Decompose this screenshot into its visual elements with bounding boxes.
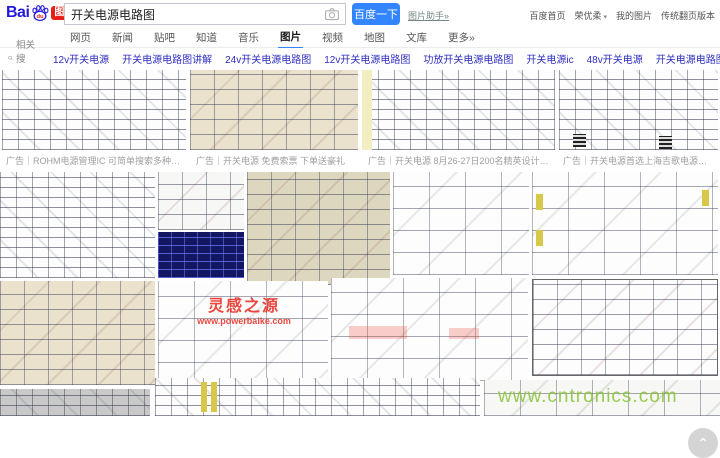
vertical-tabs-bar: 网页 新闻 贴吧 知道 音乐 图片 视频 地图 文库 更多» <box>0 27 720 48</box>
related-term-6[interactable]: 开关电源ic <box>526 51 573 66</box>
tab-news[interactable]: 新闻 <box>110 27 135 48</box>
link-baidu-home[interactable]: 百度首页 <box>529 9 565 22</box>
baidu-image-search-page: { "header": { "logo": {"bai": "Bai", "du… <box>0 0 720 416</box>
tab-more[interactable]: 更多» <box>446 27 477 48</box>
image-result[interactable] <box>331 278 528 381</box>
wire-highlight <box>536 194 543 210</box>
svg-text:du: du <box>37 14 45 20</box>
search-button[interactable]: 百度一下 <box>352 3 400 25</box>
transformer-highlight <box>201 382 207 412</box>
wire-highlight <box>536 230 543 246</box>
image-result[interactable] <box>393 172 529 275</box>
image-result[interactable] <box>155 378 480 416</box>
image-edge-decor <box>362 70 372 150</box>
related-search-bar: 相关搜索： 12v开关电源 开关电源电路图讲解 24v开关电源电路图 12v开关… <box>0 48 720 68</box>
image-result[interactable] <box>0 389 150 416</box>
tab-maps[interactable]: 地图 <box>362 27 387 48</box>
ad-image-designer[interactable] <box>362 70 555 150</box>
image-results-grid: 广告｜ROHM电源管理IC 可简单搜索多种产品线! 广告｜开关电源 免费索票 下… <box>0 68 720 416</box>
tab-wenku[interactable]: 文库 <box>404 27 429 48</box>
image-result[interactable] <box>158 172 244 230</box>
back-to-top-button[interactable]: ⌃ <box>688 428 718 458</box>
related-term-3[interactable]: 24v开关电源电路图 <box>225 51 311 66</box>
related-term-1[interactable]: 12v开关电源 <box>53 51 109 66</box>
link-my-images[interactable]: 我的图片 <box>616 9 652 22</box>
image-helper-link[interactable]: 图片助手» <box>408 9 449 22</box>
tab-images-active[interactable]: 图片 <box>278 26 303 49</box>
image-result[interactable] <box>0 281 155 385</box>
ad-caption[interactable]: 广告｜开关电源 8月26-27日200名精英设计师等.. <box>368 154 553 167</box>
ad-caption[interactable]: 广告｜ROHM电源管理IC 可简单搜索多种产品线! <box>6 154 184 167</box>
watermark-stamp <box>349 326 407 339</box>
transformer-highlight <box>211 382 217 412</box>
ad-image-jige[interactable] <box>559 70 718 150</box>
qr-code <box>659 136 672 149</box>
related-term-4[interactable]: 12v开关电源电路图 <box>324 51 410 66</box>
wire-highlight <box>702 190 709 206</box>
related-term-2[interactable]: 开关电源电路图讲解 <box>122 51 212 66</box>
ad-image-expo[interactable] <box>190 70 358 150</box>
tab-video[interactable]: 视频 <box>320 27 345 48</box>
watermark-stamp <box>449 328 479 339</box>
search-icon <box>8 53 13 63</box>
camera-search-icon[interactable] <box>324 6 340 22</box>
image-result-boxed[interactable] <box>532 279 718 376</box>
image-result-cntronics[interactable] <box>484 380 720 416</box>
tab-tieba[interactable]: 贴吧 <box>152 27 177 48</box>
tab-web[interactable]: 网页 <box>68 27 93 48</box>
image-result[interactable] <box>0 172 155 278</box>
top-right-links: 百度首页 荣优柔 ▾ 我的图片 传统翻页版本 <box>529 9 715 22</box>
related-term-8[interactable]: 开关电源电路图详解 <box>656 51 720 66</box>
image-result-blueprint[interactable] <box>158 232 244 278</box>
baidu-paw-icon: du <box>30 3 50 23</box>
chevron-down-icon: ▾ <box>602 14 607 21</box>
ad-image-rohm[interactable] <box>2 70 186 150</box>
tab-music[interactable]: 音乐 <box>236 27 261 48</box>
image-result[interactable] <box>247 172 390 285</box>
user-menu[interactable]: 荣优柔 ▾ <box>574 9 606 22</box>
search-input[interactable] <box>65 7 324 21</box>
related-term-5[interactable]: 功放开关电源电路图 <box>423 51 513 66</box>
related-term-7[interactable]: 48v开关电源 <box>587 51 643 66</box>
ad-caption[interactable]: 广告｜开关电源 免费索票 下单送豪礼 <box>196 154 356 167</box>
link-classic-pagination[interactable]: 传统翻页版本 <box>661 9 715 22</box>
image-result-powerbaike[interactable] <box>158 281 328 385</box>
qr-code <box>573 134 586 147</box>
header: Bai du 图片 百度一下 图片助手» 百度首页 荣优柔 ▾ 我的图片 传统翻… <box>0 0 720 27</box>
ad-caption[interactable]: 广告｜开关电源首选上海吉歌电源科技有... <box>563 154 716 167</box>
logo-text-bai: Bai <box>6 4 29 22</box>
image-result[interactable] <box>532 172 718 275</box>
tab-zhidao[interactable]: 知道 <box>194 27 219 48</box>
username: 荣优柔 <box>574 11 601 21</box>
search-box <box>64 3 346 25</box>
